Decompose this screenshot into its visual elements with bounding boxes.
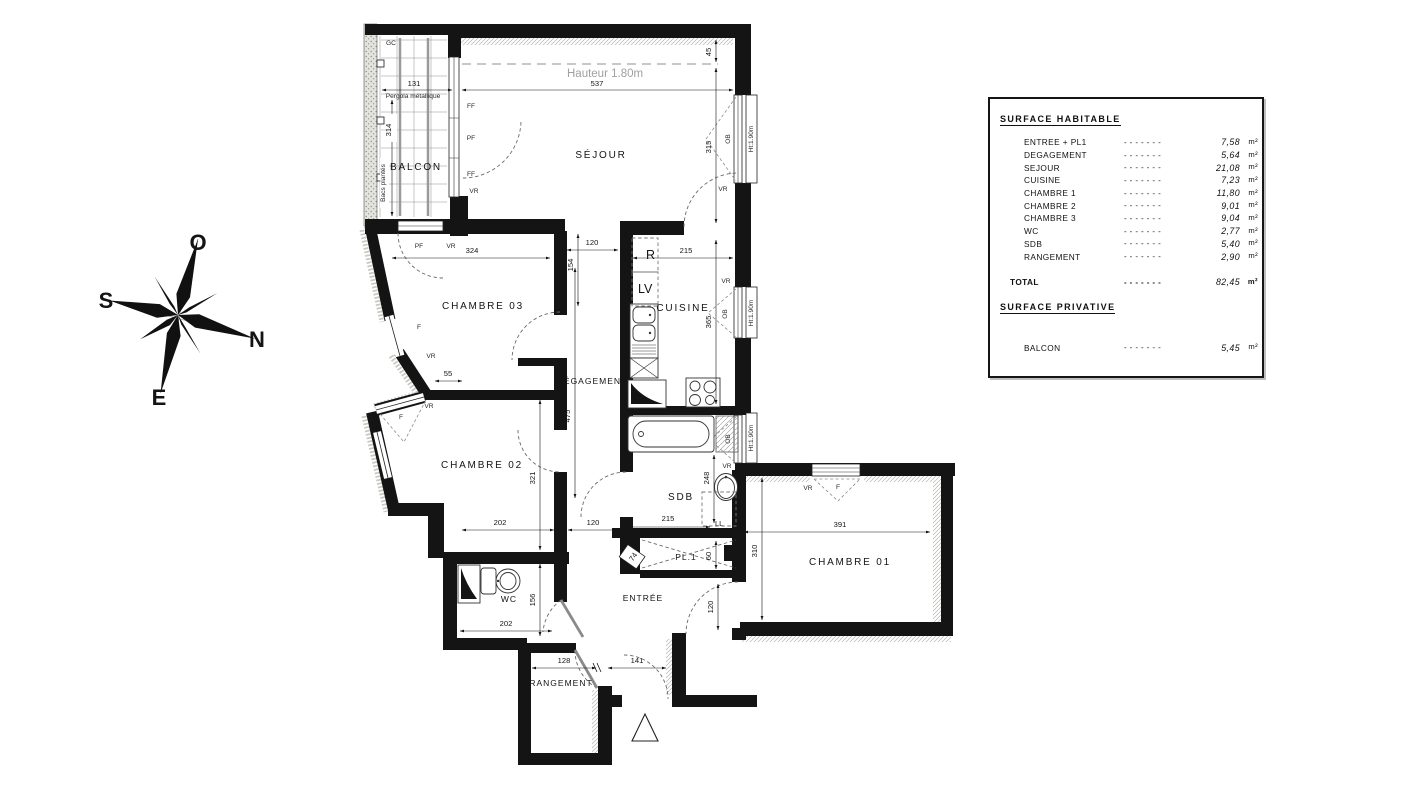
compass-label-north: N [249, 327, 265, 352]
svg-text:310: 310 [750, 545, 759, 558]
label-wc: WC [501, 594, 517, 604]
svg-text:F: F [399, 414, 403, 421]
duct-cuisine-icon [628, 380, 666, 408]
hob-icon [686, 378, 720, 407]
svg-text:156: 156 [528, 594, 537, 607]
chambre03-top-window [398, 221, 443, 231]
svg-text:315: 315 [704, 141, 713, 154]
svg-text:202: 202 [494, 518, 507, 527]
svg-text:365: 365 [704, 316, 713, 329]
compass-label-east: E [152, 385, 167, 410]
svg-text:120: 120 [587, 518, 600, 527]
svg-text:475: 475 [563, 410, 572, 423]
svg-text:VR: VR [803, 485, 812, 492]
label-balcon: BALCON [390, 162, 442, 173]
svg-text:215: 215 [662, 514, 675, 523]
svg-text:F: F [836, 484, 840, 491]
dishwasher-label: LV [638, 282, 653, 296]
svg-text:VR: VR [426, 353, 435, 360]
legend-balcon-row: BALCON- - - - - - -5,45m² [1000, 342, 1254, 355]
kitchen-sink-icon [630, 304, 658, 358]
duct-wc-icon [458, 565, 480, 603]
label-sejour: SÉJOUR [575, 148, 626, 161]
chambre01-window [806, 463, 866, 476]
svg-text:321: 321 [528, 472, 537, 485]
svg-text:215: 215 [680, 246, 693, 255]
svg-text:60: 60 [704, 552, 713, 560]
legend-row: DEGAGEMENT- - - - - - -5,64m² [1000, 149, 1254, 162]
svg-text:VR: VR [721, 278, 730, 285]
label-placard: PL.1 [675, 552, 697, 562]
svg-text:OB: OB [722, 309, 729, 319]
svg-text:154: 154 [566, 259, 575, 272]
svg-text:VR: VR [718, 186, 727, 193]
floorplan-page: O S N E [0, 0, 1421, 800]
svg-text:VR: VR [469, 188, 478, 195]
bathtub-icon [628, 416, 714, 452]
washer-label: LL [715, 519, 723, 528]
svg-text:537: 537 [591, 79, 604, 88]
label-chambre02: CHAMBRE 02 [441, 460, 523, 471]
label-sdb: SDB [668, 492, 694, 503]
label-cuisine: CUISINE [656, 303, 709, 314]
oven-icon [630, 358, 658, 378]
legend-total-row: TOTAL- - - - - - -82,45m² [1000, 276, 1254, 289]
compass-rose: O S N E [99, 230, 265, 410]
label-chambre01: CHAMBRE 01 [809, 557, 891, 568]
fridge-label: R [646, 248, 655, 262]
label-chambre03: CHAMBRE 03 [442, 301, 524, 312]
sdb-tiled-ledge [716, 416, 738, 452]
surface-legend-panel: SURFACE HABITABLE ENTREE + PL1- - - - - … [988, 97, 1264, 378]
svg-text:128: 128 [558, 656, 571, 665]
balcony-door-window [449, 57, 459, 197]
legend-row: ENTREE + PL1- - - - - - -7,58m² [1000, 136, 1254, 149]
pergola-note: Pergola métallique [386, 93, 441, 100]
svg-text:324: 324 [466, 246, 479, 255]
legend-row: WC- - - - - - -2,77m² [1000, 225, 1254, 238]
svg-text:VR: VR [424, 403, 433, 410]
svg-text:45: 45 [704, 48, 713, 56]
surface-habitable-title: SURFACE HABITABLE [1000, 114, 1121, 126]
svg-text:120: 120 [706, 601, 715, 614]
svg-text:OB: OB [725, 134, 732, 144]
legend-row: CHAMBRE 2- - - - - - -9,01m² [1000, 199, 1254, 212]
label-degagement: DÉGAGEMENT [557, 376, 627, 386]
washbasin-icon [715, 474, 738, 501]
svg-text:FF: FF [467, 103, 475, 110]
gc-label: GC [386, 40, 396, 47]
svg-text:131: 131 [408, 79, 421, 88]
toilet-icon [481, 568, 520, 594]
label-rangement: RANGEMENT [529, 678, 592, 688]
label-entree: ENTRÉE [623, 593, 663, 603]
legend-row: SDB- - - - - - -5,40m² [1000, 238, 1254, 251]
compass-point-south [110, 301, 179, 318]
chambre03-diagonal-window [389, 316, 400, 356]
svg-text:314: 314 [384, 124, 393, 137]
legend-row: CHAMBRE 1- - - - - - -11,80m² [1000, 187, 1254, 200]
legend-row: CHAMBRE 3- - - - - - -9,04m² [1000, 212, 1254, 225]
surface-habitable-rows: ENTREE + PL1- - - - - - -7,58m² DEGAGEME… [1000, 136, 1254, 263]
legend-row: RANGEMENT- - - - - - -2,90m² [1000, 250, 1254, 263]
chambre02-diagonal-window [377, 432, 388, 478]
svg-text:F: F [417, 324, 421, 331]
svg-text:PF: PF [415, 243, 423, 250]
bacs-note: Bacs plantés [380, 163, 387, 201]
svg-text:VR: VR [722, 463, 731, 470]
surface-privative-title: SURFACE PRIVATIVE [1000, 302, 1115, 314]
legend-row: SEJOUR- - - - - - -21,08m² [1000, 161, 1254, 174]
svg-text:OB: OB [725, 434, 732, 444]
ht-label-sdb: Ht:1.90m [748, 424, 755, 451]
svg-text:141: 141 [631, 656, 644, 665]
svg-text:55: 55 [444, 369, 452, 378]
svg-text:202: 202 [500, 619, 513, 628]
ht-label-cuisine: Ht:1.90m [748, 299, 755, 326]
legend-row: CUISINE- - - - - - -7,23m² [1000, 174, 1254, 187]
svg-text:120: 120 [586, 238, 599, 247]
svg-text:VR: VR [446, 243, 455, 250]
svg-text:248: 248 [702, 472, 711, 485]
entrance-triangle-icon [632, 714, 658, 741]
compass-label-west: O [189, 230, 206, 255]
ht-label-sejour: Ht:1.90m [748, 125, 755, 152]
hauteur-note: Hauteur 1.80m [567, 68, 643, 80]
compass-label-south: S [99, 288, 114, 313]
svg-text:391: 391 [834, 520, 847, 529]
svg-text:PF: PF [467, 135, 475, 142]
svg-text:FF: FF [467, 171, 475, 178]
